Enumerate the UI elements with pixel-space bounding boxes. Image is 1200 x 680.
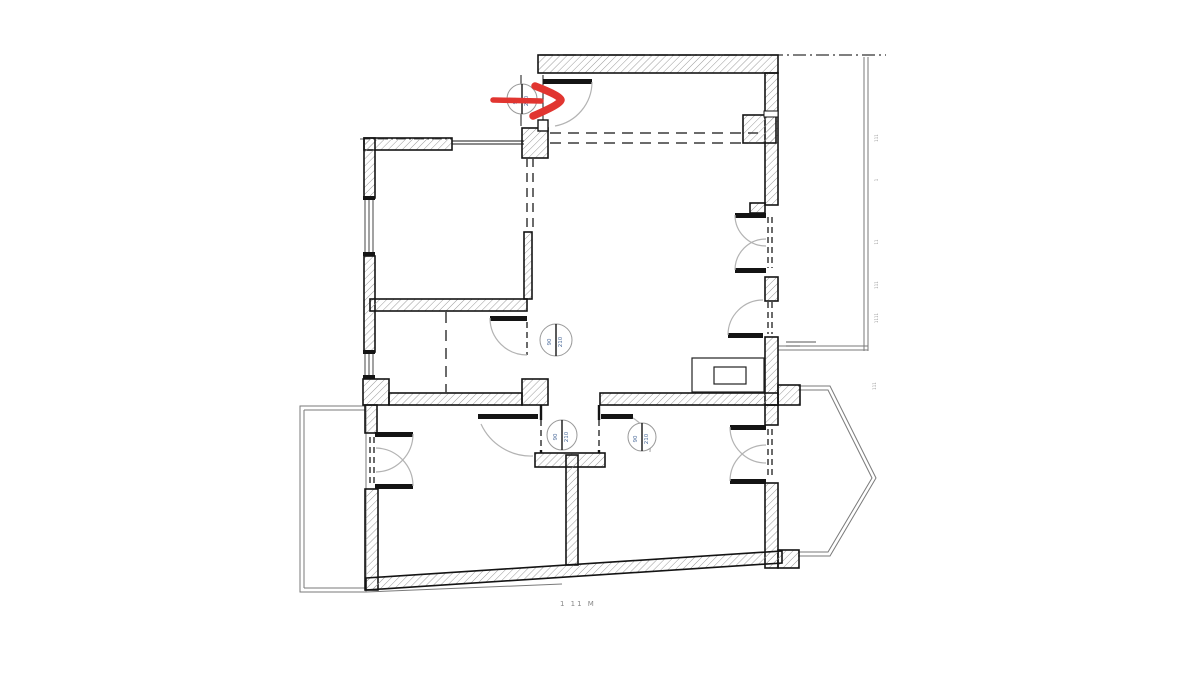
window-cap xyxy=(363,375,375,379)
bay-inner-line xyxy=(798,390,872,552)
wall-room-divider xyxy=(566,455,578,565)
lintel-topleft xyxy=(452,141,524,144)
entry-door-leaf xyxy=(543,79,592,84)
right-wall-notch xyxy=(764,111,778,117)
column-notch xyxy=(538,120,548,131)
wall-top-main xyxy=(538,55,778,73)
tag-height-label: 210 xyxy=(558,336,564,347)
window-cap xyxy=(363,252,375,256)
beam-dashed-vertical xyxy=(527,158,533,232)
furniture-inner xyxy=(714,367,746,384)
bay-french-top-leaf xyxy=(730,425,766,430)
tag-width-label: 90 xyxy=(547,338,553,345)
right-single-door-leaf xyxy=(728,333,763,338)
beam-dashed-horizontal xyxy=(550,133,758,143)
edge-dim-5: 1111 xyxy=(874,312,879,323)
bay-window-outline xyxy=(798,386,876,556)
edge-dim-2: 1 xyxy=(874,178,879,181)
tag-width-label: 90 xyxy=(553,433,559,440)
wall-smallroom-bottom xyxy=(389,393,522,405)
french-door-left-threshold xyxy=(370,437,374,487)
furniture-counter xyxy=(692,358,764,392)
floor-plan-drawing: 90 210 90 210 90 210 90 210 111 1 11 111… xyxy=(0,0,1200,680)
hall-right-door-tag: 90 210 xyxy=(628,423,656,451)
tag-width-label: 90 xyxy=(633,435,639,442)
window-glass-lines xyxy=(365,200,373,252)
column-left xyxy=(363,379,389,405)
terrace-step-mark xyxy=(786,342,816,346)
hall-left-door-arc xyxy=(481,424,533,456)
wall-inner-thin xyxy=(524,232,532,299)
inner-door-leaf xyxy=(490,316,527,321)
tag-height-label: 210 xyxy=(644,433,650,444)
bay-stub-top xyxy=(778,385,800,405)
floor-plan-canvas: 90 210 90 210 90 210 90 210 111 1 11 111… xyxy=(0,0,1200,680)
column-top-mid xyxy=(522,128,548,158)
balcony-outer-rect xyxy=(300,406,366,592)
right-door-threshold xyxy=(768,302,772,334)
wall-left-d xyxy=(365,489,378,590)
wall-topleft-bottom xyxy=(370,299,527,311)
french-main-bottom-leaf xyxy=(735,268,766,273)
bottom-scale-label: 1 11 M xyxy=(560,600,596,608)
hall-right-door-leaf xyxy=(601,414,633,419)
right-single-door-arc xyxy=(728,300,763,335)
edge-dim-3: 11 xyxy=(874,239,879,245)
edge-dim-6: 111 xyxy=(872,382,877,390)
bay-french-threshold xyxy=(768,429,772,477)
window-cap xyxy=(363,350,375,354)
wall-bayroom-upper xyxy=(765,405,778,425)
edge-dimension-texts: 111 1 11 111 1111 111 xyxy=(872,134,879,390)
bay-outer-line xyxy=(798,386,876,556)
wall-topleft-top xyxy=(364,138,452,150)
inner-door-arc xyxy=(490,318,527,355)
column-mid xyxy=(522,379,548,405)
french-left-top-leaf xyxy=(375,432,413,437)
wall-main-bottom xyxy=(600,393,778,405)
wall-right-mid xyxy=(765,277,778,301)
window-left-lower xyxy=(363,350,375,379)
walls xyxy=(363,55,800,590)
wall-left-c xyxy=(365,405,377,433)
edge-dim-4: 111 xyxy=(874,281,879,289)
wall-right-jamb xyxy=(750,203,765,213)
french-left-bottom-leaf xyxy=(375,484,413,489)
french-main-top-arc xyxy=(735,215,766,246)
window-cap xyxy=(363,196,375,200)
left-balcony-outline xyxy=(300,406,366,592)
hall-left-door-tag: 90 210 xyxy=(547,420,577,450)
french-main-bottom-arc xyxy=(735,239,766,270)
window-left-upper xyxy=(363,196,375,256)
wall-left-a xyxy=(364,138,375,198)
balcony-inner-line xyxy=(304,410,366,588)
arrow-shaft xyxy=(493,100,541,101)
tag-height-label: 210 xyxy=(564,431,570,442)
window-glass-lines xyxy=(365,354,373,375)
inner-room-door-tag: 90 210 xyxy=(540,324,572,356)
french-main-top-leaf xyxy=(735,213,766,218)
column-beam-right xyxy=(743,115,776,143)
hall-left-door-leaf xyxy=(478,414,538,419)
bay-french-bottom-leaf xyxy=(730,479,766,484)
edge-dim-1: 111 xyxy=(874,134,879,142)
terrace-outline xyxy=(778,57,868,351)
right-french-threshold xyxy=(768,217,772,268)
